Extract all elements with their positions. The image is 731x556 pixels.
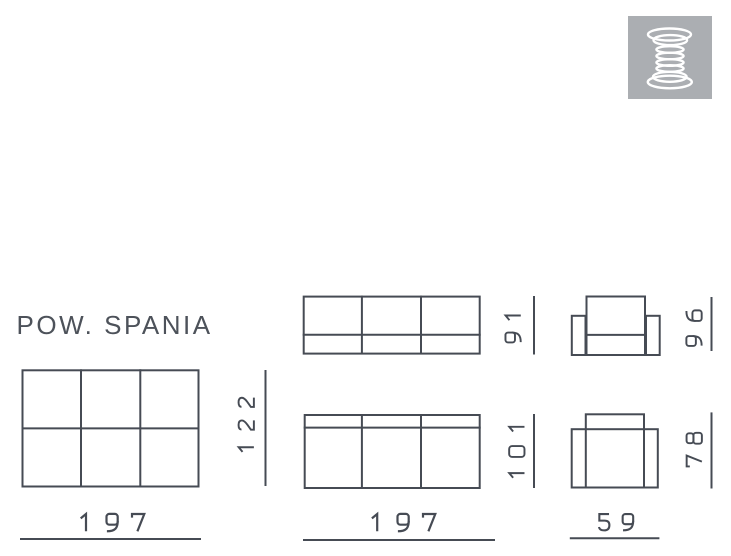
svg-text:POW. SPANIA: POW. SPANIA bbox=[17, 310, 213, 340]
